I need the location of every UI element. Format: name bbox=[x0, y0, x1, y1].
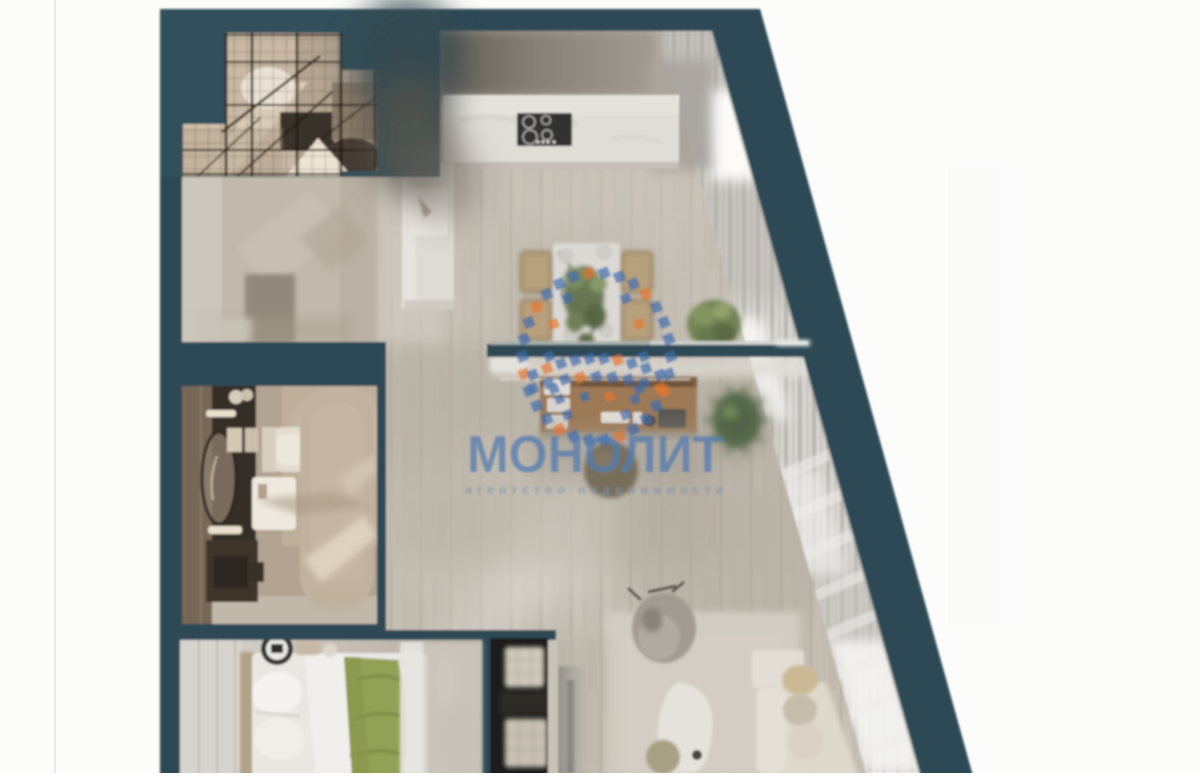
svg-text:агентство недвижимости: агентство недвижимости bbox=[465, 482, 728, 497]
svg-text:МОНОЛИТ: МОНОЛИТ bbox=[467, 426, 723, 484]
